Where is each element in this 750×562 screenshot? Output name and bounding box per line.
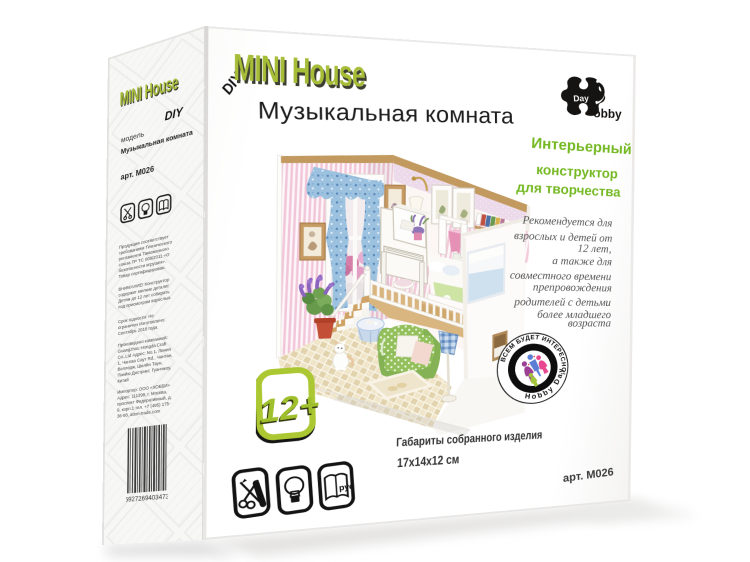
svg-text:obby: obby bbox=[593, 107, 622, 122]
svg-text:Day: Day bbox=[573, 94, 589, 104]
svg-text:12+: 12+ bbox=[258, 386, 319, 430]
